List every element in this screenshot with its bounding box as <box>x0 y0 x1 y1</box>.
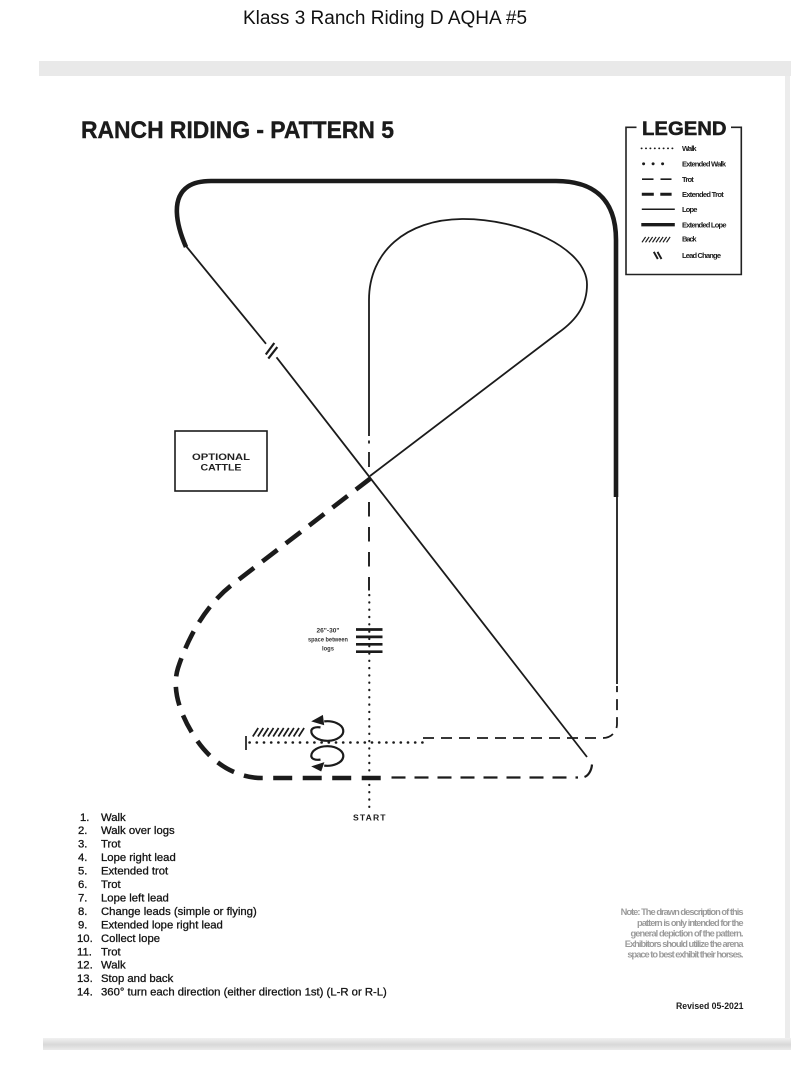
svg-text:logs: logs <box>322 645 334 652</box>
svg-text:general depiction of the patte: general depiction of the pattern. <box>631 928 744 938</box>
svg-text:9.: 9. <box>78 919 87 931</box>
svg-text:Trot: Trot <box>101 839 122 851</box>
svg-text:1.: 1. <box>80 812 89 824</box>
svg-text:Revised 05-2021: Revised 05-2021 <box>676 1001 744 1011</box>
svg-text:14.: 14. <box>77 987 93 999</box>
svg-text:Exhibitors should utilize the: Exhibitors should utilize the arena <box>625 939 745 949</box>
svg-text:360° turn each direction (eith: 360° turn each direction (either directi… <box>101 987 387 999</box>
svg-text:Collect lope: Collect lope <box>101 933 160 945</box>
svg-text:Walk over logs: Walk over logs <box>101 825 175 837</box>
svg-text:pattern is only intended for t: pattern is only intended for the <box>637 918 744 928</box>
svg-text:OPTIONAL: OPTIONAL <box>192 452 250 463</box>
svg-text:Walk: Walk <box>101 960 126 972</box>
svg-text:Extended Trot: Extended Trot <box>682 190 724 199</box>
svg-text:4.: 4. <box>78 852 87 864</box>
svg-text:RANCH RIDING - PATTERN 5: RANCH RIDING - PATTERN 5 <box>81 117 394 144</box>
svg-text:Walk: Walk <box>101 812 126 824</box>
svg-text:Trot: Trot <box>101 879 122 891</box>
svg-text:10.: 10. <box>77 933 93 945</box>
svg-text:LEGEND: LEGEND <box>642 119 727 140</box>
svg-text:Extended trot: Extended trot <box>101 866 169 878</box>
svg-text:26"-30": 26"-30" <box>317 627 340 634</box>
svg-text:2.: 2. <box>78 825 87 837</box>
svg-text:Trot: Trot <box>682 175 694 184</box>
svg-text:START: START <box>353 812 386 822</box>
svg-text:3.: 3. <box>78 839 87 851</box>
svg-text:6.: 6. <box>78 879 87 891</box>
svg-text:7.: 7. <box>78 893 87 905</box>
svg-text:Lope left lead: Lope left lead <box>101 893 169 905</box>
svg-text:13.: 13. <box>77 973 93 985</box>
svg-text:11.: 11. <box>77 946 92 958</box>
svg-text:Extended Walk: Extended Walk <box>682 159 727 168</box>
svg-text:Note: The drawn description of: Note: The drawn description of this <box>621 907 744 917</box>
svg-text:Extended lope right lead: Extended lope right lead <box>101 919 223 931</box>
svg-text:Trot: Trot <box>101 946 122 958</box>
svg-text:Lope: Lope <box>682 205 697 214</box>
svg-text:space to best exhibit their ho: space to best exhibit their horses. <box>627 950 743 960</box>
svg-text:8.: 8. <box>78 906 87 918</box>
svg-text:12.: 12. <box>77 960 93 972</box>
svg-text:5.: 5. <box>78 866 87 878</box>
svg-text:Walk: Walk <box>682 144 697 153</box>
svg-text:Change leads (simple or flying: Change leads (simple or flying) <box>101 906 257 918</box>
svg-text:Stop and back: Stop and back <box>101 973 174 985</box>
svg-text:CATTLE: CATTLE <box>201 463 242 474</box>
svg-text:Lead Change: Lead Change <box>682 251 721 260</box>
svg-text:space between: space between <box>308 636 348 643</box>
svg-text:Extended Lope: Extended Lope <box>682 220 727 229</box>
svg-text:Back: Back <box>682 235 697 244</box>
svg-text:Lope right lead: Lope right lead <box>101 852 176 864</box>
